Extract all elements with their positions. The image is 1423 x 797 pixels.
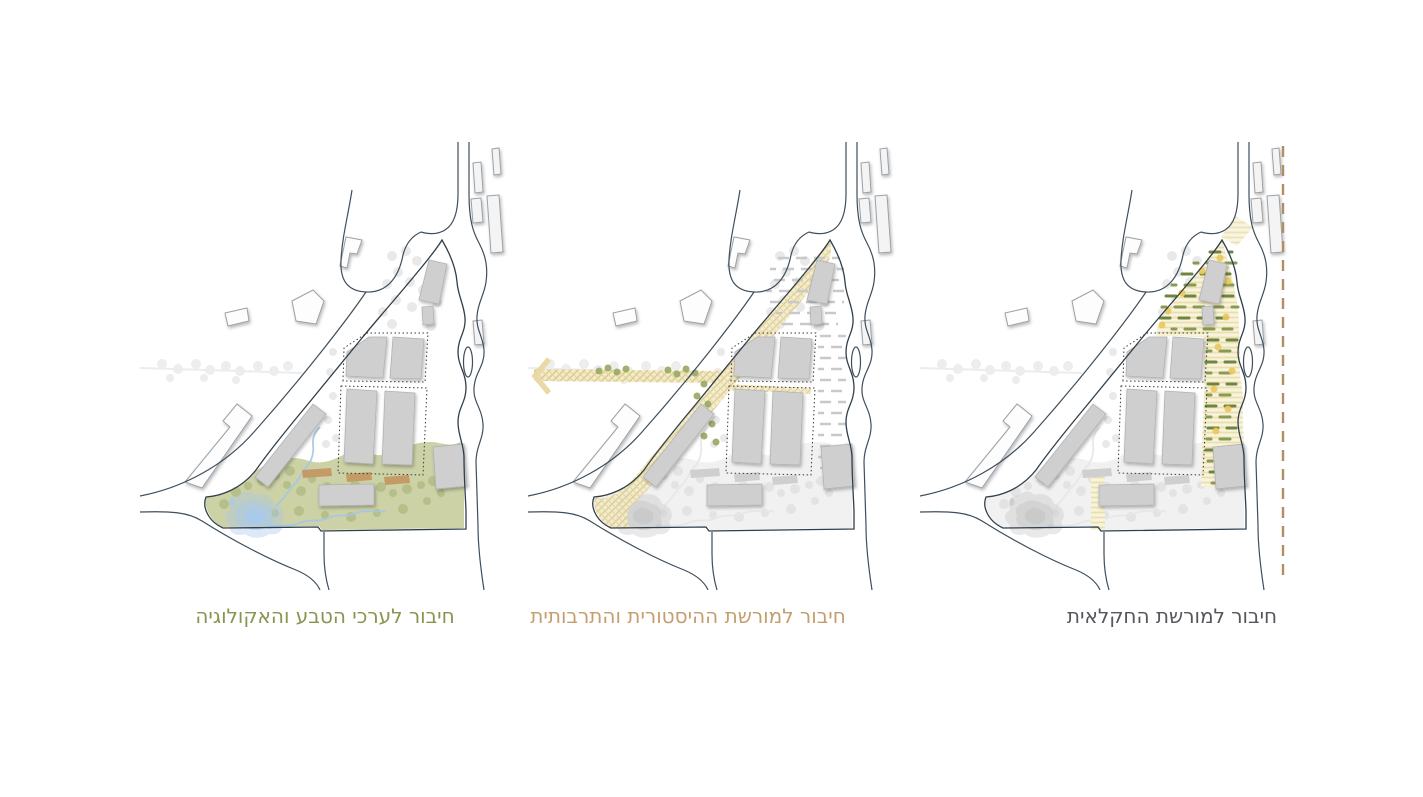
caption-agriculture: חיבור למורשת החקלאית [972, 603, 1372, 629]
caption-heritage: חיבור למורשת ההיסטורית והתרבותית [488, 603, 888, 629]
site-plan-diagram-heritage [528, 140, 928, 590]
context-trees-west [140, 359, 302, 384]
caption-ecology: חיבור לערכי הטבע והאקולוגיה [125, 603, 525, 629]
map-ecology [140, 140, 540, 590]
context-trees-west [920, 359, 1082, 384]
presentation-slide: חיבור לערכי הטבע והאקולוגיה חיבור למורשת… [0, 0, 1423, 797]
site-plan-diagram-agriculture [920, 140, 1320, 590]
site-plan-diagram-ecology [140, 140, 540, 590]
map-heritage [528, 140, 928, 590]
context-buildings [185, 148, 503, 488]
map-agriculture [920, 140, 1320, 590]
field-strip-north-patch [1221, 216, 1253, 246]
context-buildings [573, 148, 891, 488]
